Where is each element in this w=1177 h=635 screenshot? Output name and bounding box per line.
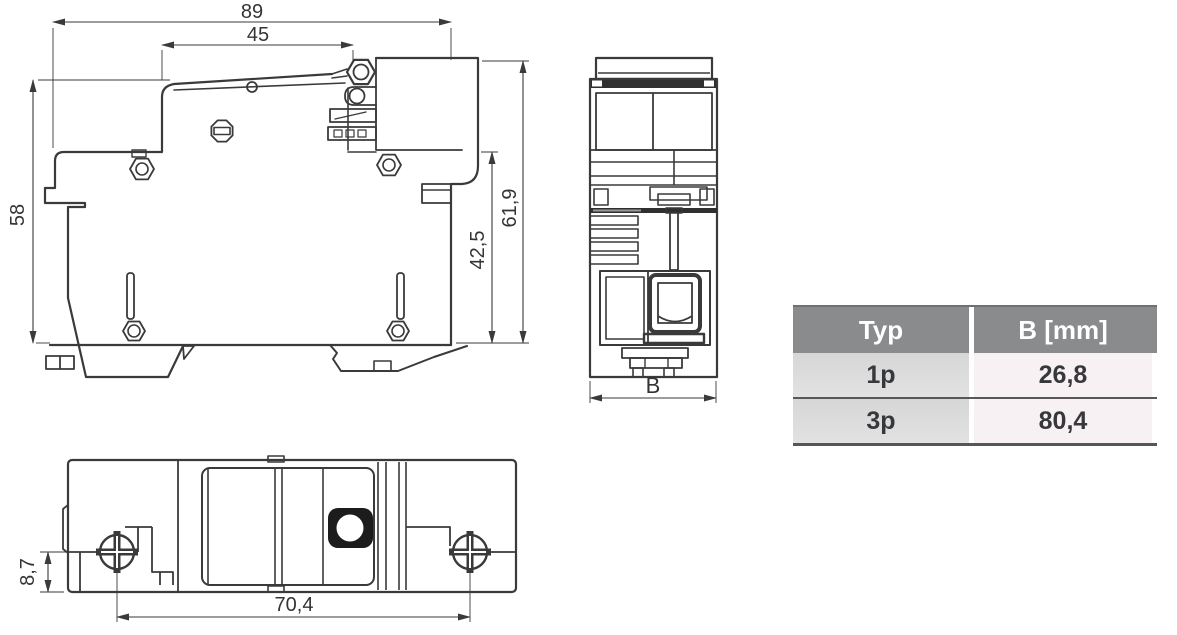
dim-height-lower: 42,5 <box>467 231 489 270</box>
vent-slot <box>590 216 638 225</box>
spec-b-value: 80,4 <box>974 399 1152 443</box>
side-body-outline-left <box>45 74 332 377</box>
slot-left <box>127 273 134 319</box>
dim-screw-spacing: 70,4 <box>275 594 314 616</box>
spec-table-header-typ: Typ <box>793 307 974 353</box>
dim-height-full: 61,9 <box>499 189 521 228</box>
mount-screw-right <box>449 531 491 573</box>
spec-b-value: 26,8 <box>974 353 1152 397</box>
spec-table-header-row: Typ B [mm] <box>793 307 1157 353</box>
vent-slot <box>590 229 638 238</box>
dim-front-width-b: B <box>646 373 661 398</box>
dim-edge-offset: 8,7 <box>17 558 39 586</box>
front-top-cap <box>596 58 712 79</box>
table-row: 1p 26,8 <box>793 353 1157 397</box>
pivot-hex-bolt <box>347 60 375 84</box>
table-row: 3p 80,4 <box>793 397 1157 443</box>
bottom-view <box>63 456 516 592</box>
front-view <box>590 58 717 377</box>
dim-upper-width: 45 <box>247 24 269 46</box>
band-nut-left <box>130 159 154 180</box>
din-foot-right <box>330 345 467 371</box>
dim-height: 58 <box>7 204 29 226</box>
terminal-chamber <box>376 58 478 345</box>
vent-slot <box>590 255 638 264</box>
spec-typ-value: 1p <box>793 353 974 397</box>
din-foot-left <box>46 356 74 369</box>
vent-slot <box>590 242 638 251</box>
mount-screw-left <box>96 531 138 573</box>
spec-typ-value: 3p <box>793 399 974 443</box>
right-wing <box>422 184 451 203</box>
slot-right <box>397 273 404 319</box>
band-nut-right <box>377 155 401 176</box>
spec-table-header-b: B [mm] <box>974 307 1152 353</box>
spec-table: Typ B [mm] 1p 26,8 3p 80,4 <box>793 305 1157 446</box>
terminal-screw <box>350 89 365 104</box>
side-view <box>45 58 478 377</box>
bottom-body-outline <box>68 460 516 592</box>
terminal-tab-2 <box>328 127 376 140</box>
side-view-dimensions <box>33 22 529 343</box>
front-dark-band <box>590 79 717 88</box>
technical-drawing-page: 89 45 58 61,9 42,5 <box>0 0 1177 635</box>
dim-total-width: 89 <box>241 1 263 23</box>
